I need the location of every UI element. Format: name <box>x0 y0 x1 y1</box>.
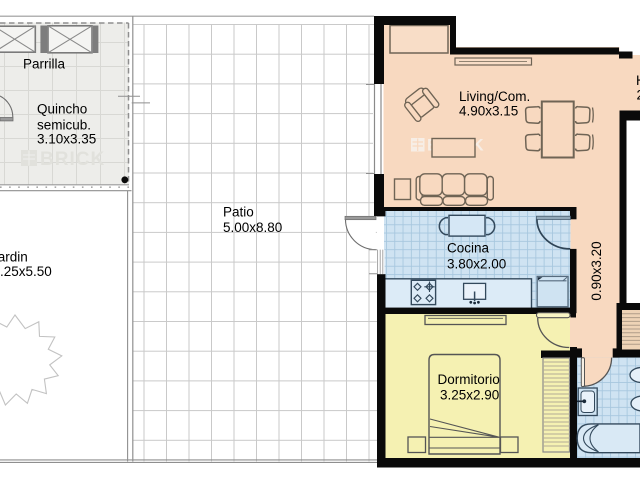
svg-text:0.90x3.20: 0.90x3.20 <box>589 241 604 300</box>
svg-text:Ha: Ha <box>636 73 640 88</box>
svg-text:Cocina: Cocina <box>447 241 490 256</box>
svg-text:Jardin: Jardin <box>0 250 28 265</box>
svg-text:semicub.: semicub. <box>37 118 91 133</box>
svg-text:3.25x2.90: 3.25x2.90 <box>440 388 499 403</box>
svg-text:3.10x3.35: 3.10x3.35 <box>37 132 96 147</box>
svg-text:Dormitorio: Dormitorio <box>438 372 500 387</box>
svg-text:Living/Com.: Living/Com. <box>459 89 530 104</box>
svg-text:Parrilla: Parrilla <box>23 57 66 72</box>
svg-text:2.: 2. <box>637 88 640 103</box>
svg-text:3.25x5.50: 3.25x5.50 <box>0 264 52 279</box>
svg-text:Quincho: Quincho <box>37 102 87 117</box>
svg-text:4.90x3.15: 4.90x3.15 <box>459 104 518 119</box>
svg-text:3.80x2.00: 3.80x2.00 <box>447 257 506 272</box>
svg-text:BRICK: BRICK <box>40 149 105 170</box>
svg-text:5.00x8.80: 5.00x8.80 <box>223 220 282 235</box>
svg-text:Patio: Patio <box>223 205 254 220</box>
